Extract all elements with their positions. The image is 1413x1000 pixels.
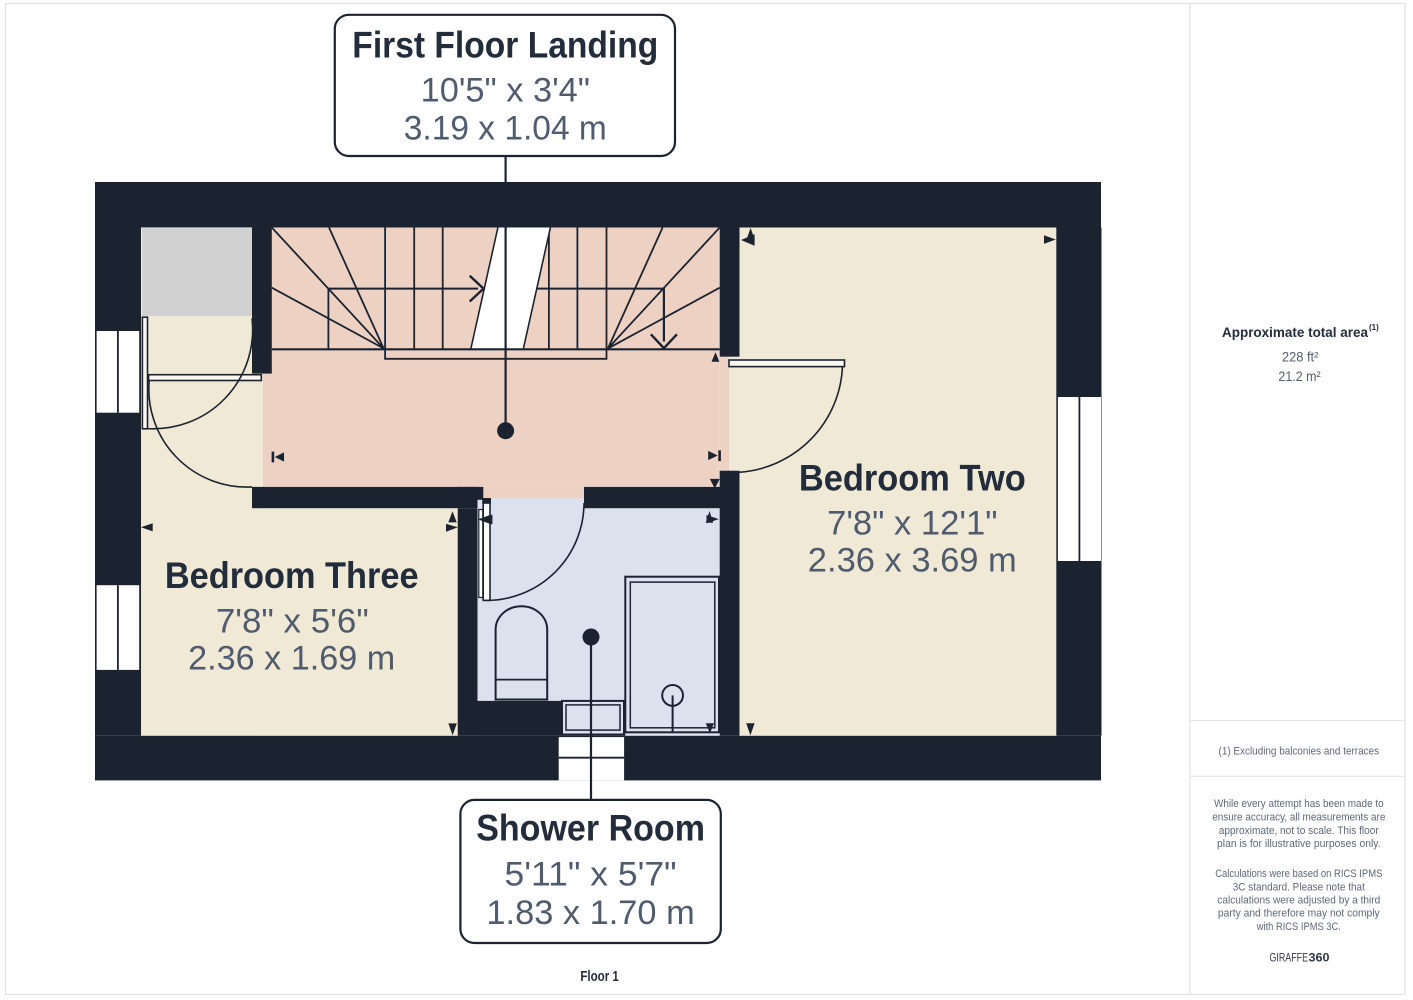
svg-text:(1): (1) [1369, 323, 1379, 332]
svg-text:228 ft²: 228 ft² [1282, 349, 1319, 365]
svg-text:7'8" x 5'6": 7'8" x 5'6" [216, 602, 369, 640]
svg-text:(1) Excluding balconies and te: (1) Excluding balconies and terraces [1219, 746, 1380, 758]
svg-text:Approximate total area: Approximate total area [1222, 325, 1368, 340]
svg-text:Floor 1: Floor 1 [580, 969, 619, 985]
svg-text:First Floor Landing: First Floor Landing [352, 25, 658, 66]
svg-text:Bedroom Two: Bedroom Two [799, 458, 1026, 499]
svg-text:GIRAFFE360: GIRAFFE360 [1270, 953, 1330, 965]
svg-text:3C standard. Please note that: 3C standard. Please note that [1233, 881, 1365, 893]
svg-text:party and therefore may not co: party and therefore may not comply [1218, 908, 1380, 920]
svg-text:3.19 x 1.04 m: 3.19 x 1.04 m [404, 110, 607, 148]
svg-text:Calculations were based on RIC: Calculations were based on RICS IPMS [1215, 868, 1382, 880]
svg-text:with RICS IPMS 3C.: with RICS IPMS 3C. [1256, 921, 1341, 933]
svg-text:approximate, not to scale. Thi: approximate, not to scale. This floor [1219, 825, 1379, 837]
svg-text:10'5" x 3'4": 10'5" x 3'4" [421, 72, 590, 110]
svg-text:calculations were adjusted by: calculations were adjusted by a third [1217, 895, 1380, 907]
svg-text:7'8" x 12'1": 7'8" x 12'1" [827, 505, 997, 543]
svg-text:ensure accuracy, all measureme: ensure accuracy, all measurements are [1212, 811, 1385, 823]
svg-text:21.2 m²: 21.2 m² [1278, 368, 1320, 384]
svg-text:Shower Room: Shower Room [476, 808, 705, 849]
svg-text:While every attempt has been m: While every attempt has been made to [1214, 798, 1384, 810]
svg-text:Bedroom Three: Bedroom Three [165, 555, 419, 596]
svg-text:5'11" x 5'7": 5'11" x 5'7" [505, 855, 677, 893]
svg-text:1.83 x 1.70 m: 1.83 x 1.70 m [486, 894, 694, 932]
svg-text:2.36 x 3.69 m: 2.36 x 3.69 m [808, 541, 1017, 579]
svg-text:2.36 x 1.69 m: 2.36 x 1.69 m [188, 640, 395, 678]
svg-text:plan is for illustrative purpo: plan is for illustrative purposes only. [1217, 838, 1381, 850]
